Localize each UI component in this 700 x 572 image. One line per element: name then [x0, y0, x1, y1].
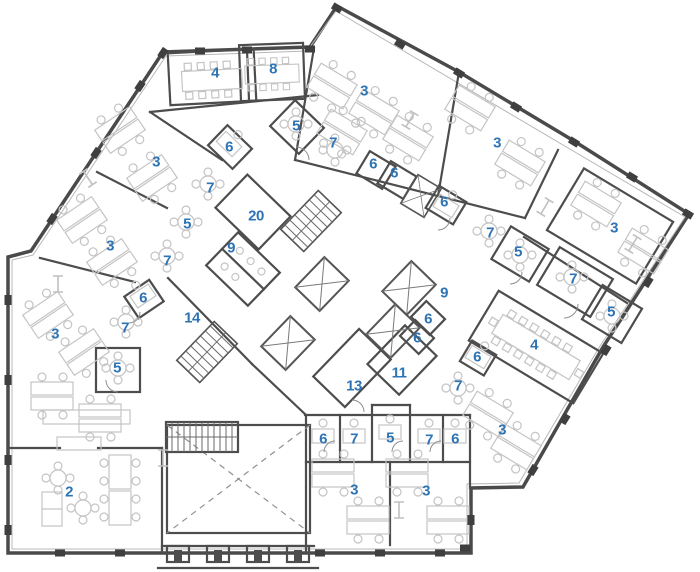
floor-plan-canvas — [0, 0, 700, 572]
floor-plan-image: 4835763366762053739577965146736465111377… — [0, 0, 700, 572]
